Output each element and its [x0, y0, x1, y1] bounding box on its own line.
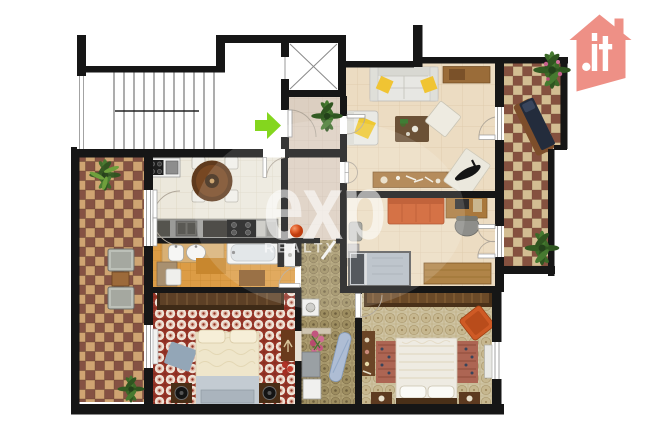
- svg-text:REALTY: REALTY: [264, 240, 338, 256]
